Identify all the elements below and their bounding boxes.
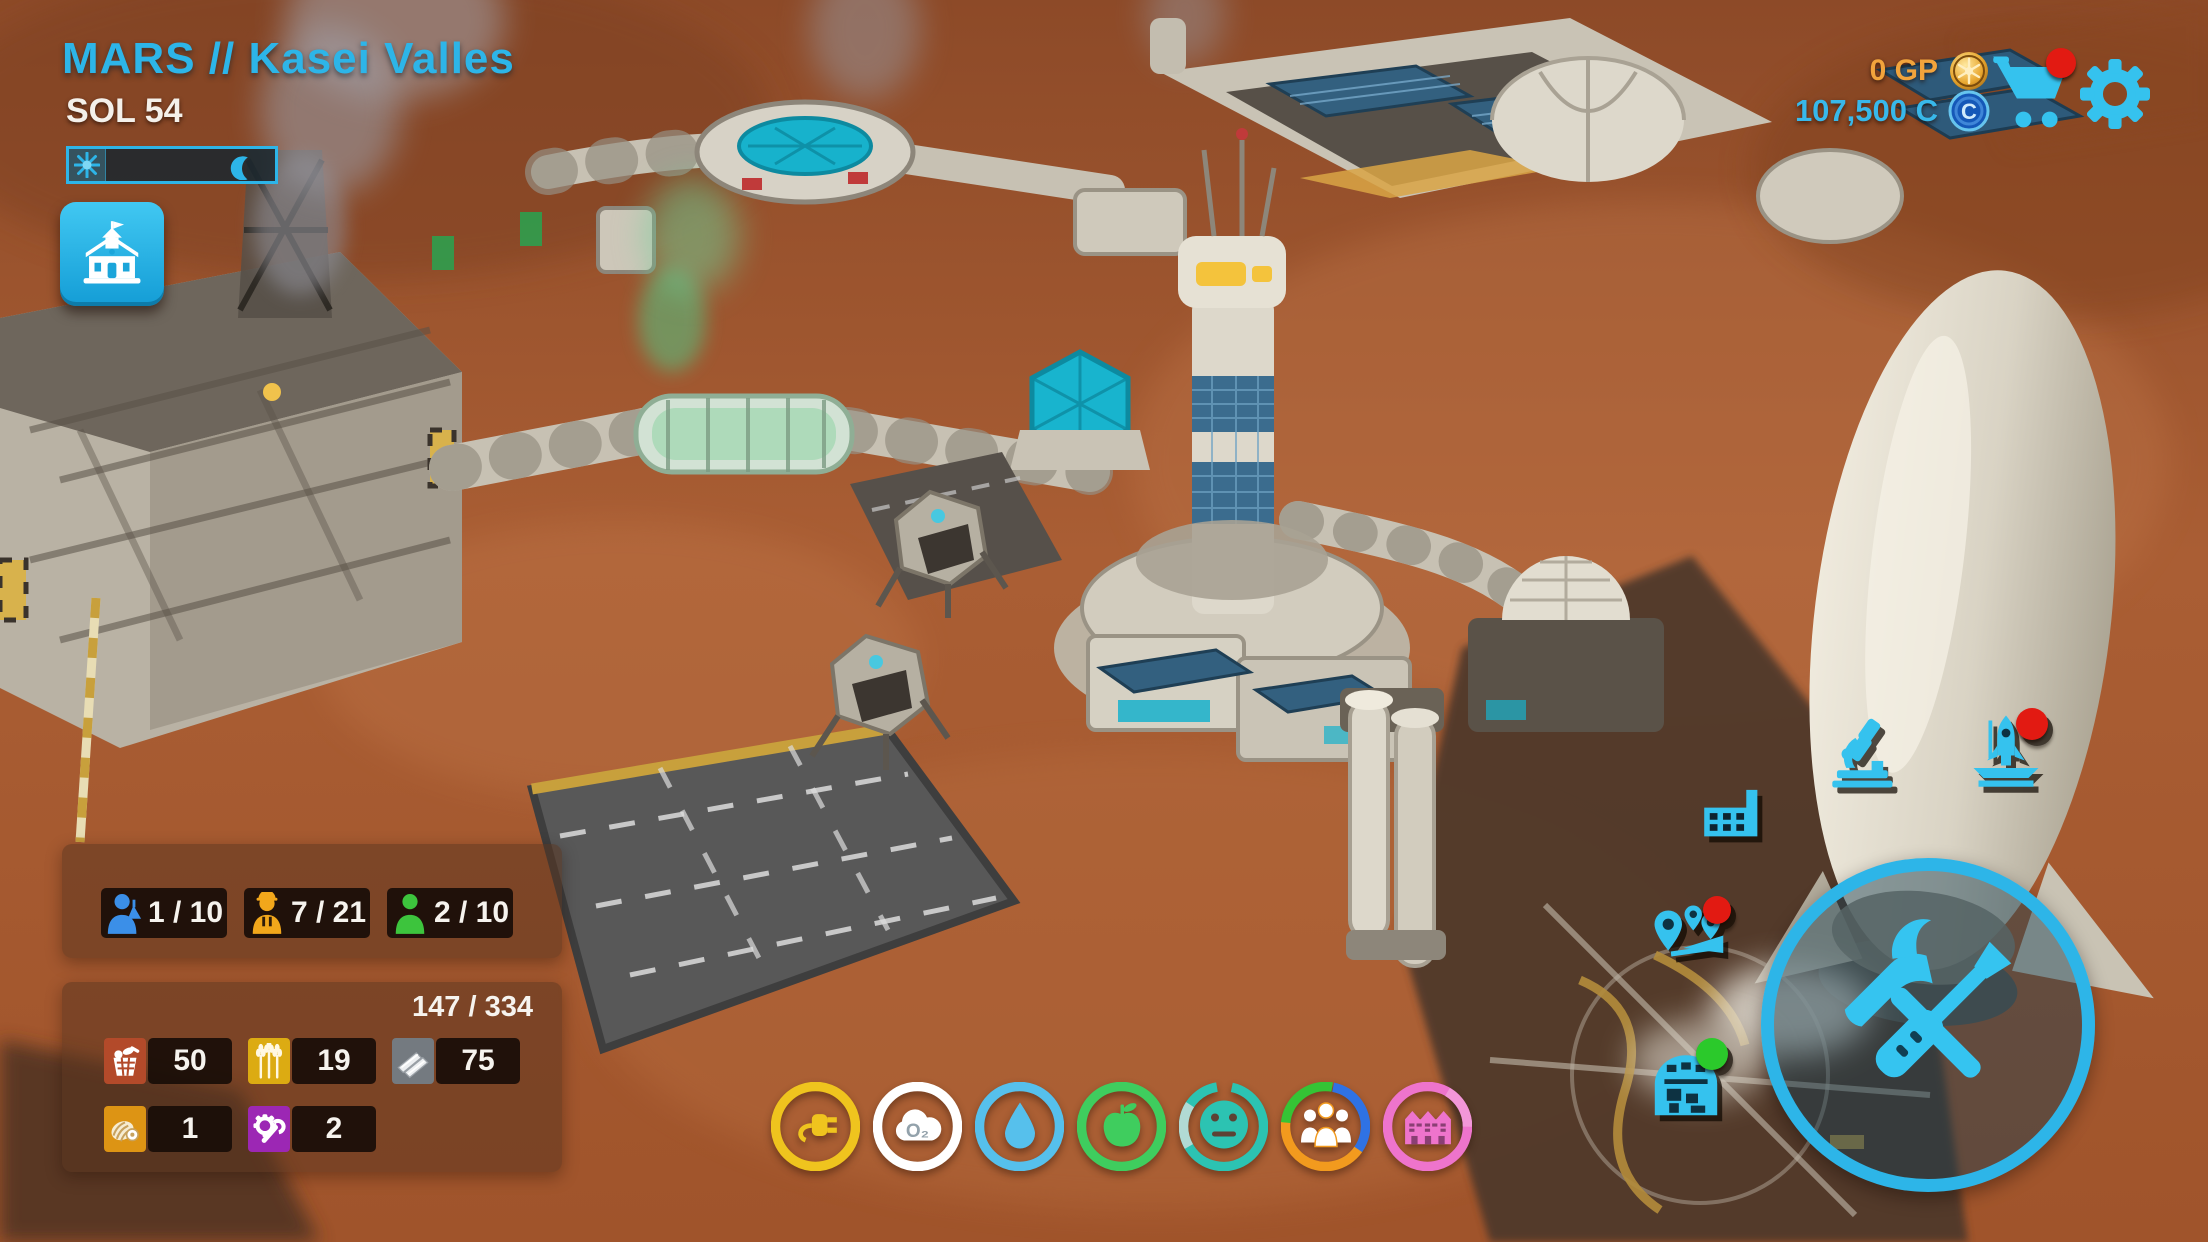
store-button[interactable] (1988, 46, 2080, 134)
colony-status-rings: O₂ (771, 1082, 1472, 1171)
colonists-count: 2 / 10 (430, 896, 513, 930)
sol-counter: SOL 54 (66, 92, 183, 131)
launch-notification-badge (2016, 708, 2048, 740)
gp-wallet[interactable]: 0 GP (1690, 50, 1990, 92)
engineer-icon (247, 892, 287, 934)
cable-resource[interactable]: 1 (104, 1106, 232, 1152)
store-notification-badge (2046, 48, 2076, 78)
town-hall-icon (77, 219, 147, 289)
engineers-count: 7 / 21 (287, 896, 370, 930)
credits-wallet[interactable]: 107,500 C C (1690, 90, 1990, 132)
resources-panel: 147 / 334 50 (62, 982, 562, 1172)
game-screen: MARS // Kasei Valles SOL 54 0 GP (0, 0, 2208, 1242)
power-status[interactable] (771, 1082, 860, 1171)
production-button[interactable] (1702, 784, 1764, 845)
water-drop-icon (1000, 1100, 1040, 1153)
ring-station[interactable] (697, 102, 913, 202)
water-status[interactable] (975, 1082, 1064, 1171)
moon-icon (227, 154, 253, 185)
gp-coin-icon (1948, 50, 1990, 92)
gp-amount: 0 GP (1870, 54, 1938, 88)
colony-hub-button[interactable] (60, 202, 164, 306)
supplies-resource[interactable]: 50 (104, 1038, 232, 1084)
storage-capacity: 147 / 334 (412, 991, 533, 1024)
apple-icon (1099, 1100, 1145, 1153)
population-status[interactable] (1281, 1082, 1370, 1171)
o2-label: O₂ (906, 1121, 929, 1143)
oxygen-status[interactable]: O₂ (873, 1082, 962, 1171)
colonists-stat[interactable]: 2 / 10 (387, 888, 513, 938)
factory-icon (1702, 784, 1764, 840)
crops-resource[interactable]: 19 (248, 1038, 376, 1084)
microscope-icon (1830, 716, 1904, 792)
depot-notification-badge (1696, 1038, 1728, 1070)
crops-icon (248, 1038, 290, 1084)
settings-button[interactable] (2080, 58, 2150, 130)
morale-status[interactable] (1179, 1082, 1268, 1171)
build-tools-icon (1819, 916, 2037, 1134)
credits-coin-icon: C (1948, 90, 1990, 132)
metal-icon (392, 1038, 434, 1084)
gear-icon (2080, 58, 2150, 130)
metal-resource[interactable]: 75 (392, 1038, 520, 1084)
supplies-count: 50 (148, 1038, 232, 1084)
build-button[interactable] (1761, 858, 2095, 1192)
spare-parts-icon (248, 1106, 290, 1152)
credits-amount: 107,500 C (1795, 93, 1938, 129)
research-button[interactable] (1830, 716, 1904, 797)
colonist-icon (390, 892, 430, 934)
scientists-stat[interactable]: 1 / 10 (101, 888, 227, 938)
location-title: MARS // Kasei Valles (62, 34, 515, 84)
scientist-icon (104, 892, 144, 934)
day-night-bar (66, 146, 278, 184)
spare-parts-count: 2 (292, 1106, 376, 1152)
population-group-icon (1299, 1100, 1353, 1153)
engineers-stat[interactable]: 7 / 21 (244, 888, 370, 938)
supplies-icon (104, 1038, 146, 1084)
crops-count: 19 (292, 1038, 376, 1084)
housing-status[interactable] (1383, 1082, 1472, 1171)
cable-spool-icon (104, 1106, 146, 1152)
cable-count: 1 (148, 1106, 232, 1152)
depot-button[interactable] (1650, 1048, 1722, 1125)
spare-parts-resource[interactable]: 2 (248, 1106, 376, 1152)
svg-text:C: C (1961, 99, 1977, 124)
launch-button[interactable] (1966, 712, 2046, 799)
missions-button[interactable] (1645, 898, 1729, 973)
metal-count: 75 (436, 1038, 520, 1084)
food-status[interactable] (1077, 1082, 1166, 1171)
morale-face-icon (1198, 1098, 1250, 1155)
population-panel: 1 / 10 7 / 21 2 / 10 (62, 844, 562, 958)
sun-icon (69, 149, 106, 181)
housing-icon (1403, 1102, 1453, 1151)
scientists-count: 1 / 10 (144, 896, 227, 930)
power-plug-icon (791, 1099, 841, 1154)
missions-notification-badge (1703, 896, 1731, 924)
